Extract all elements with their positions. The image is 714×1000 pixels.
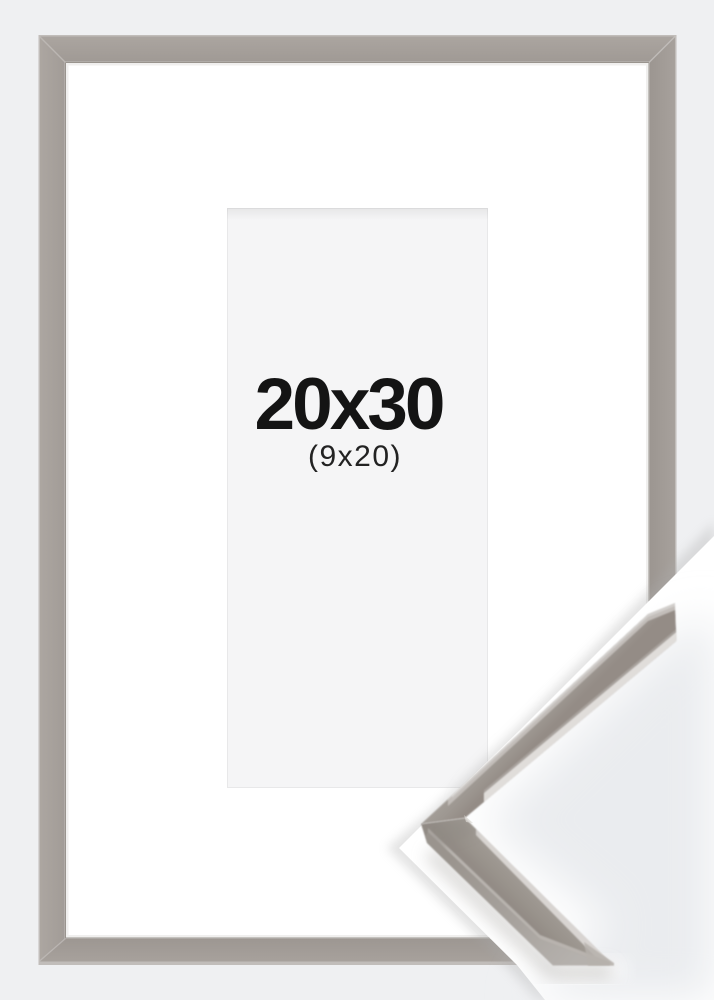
svg-text:(9x20): (9x20) bbox=[308, 440, 402, 473]
svg-text:20x30: 20x30 bbox=[255, 364, 443, 445]
